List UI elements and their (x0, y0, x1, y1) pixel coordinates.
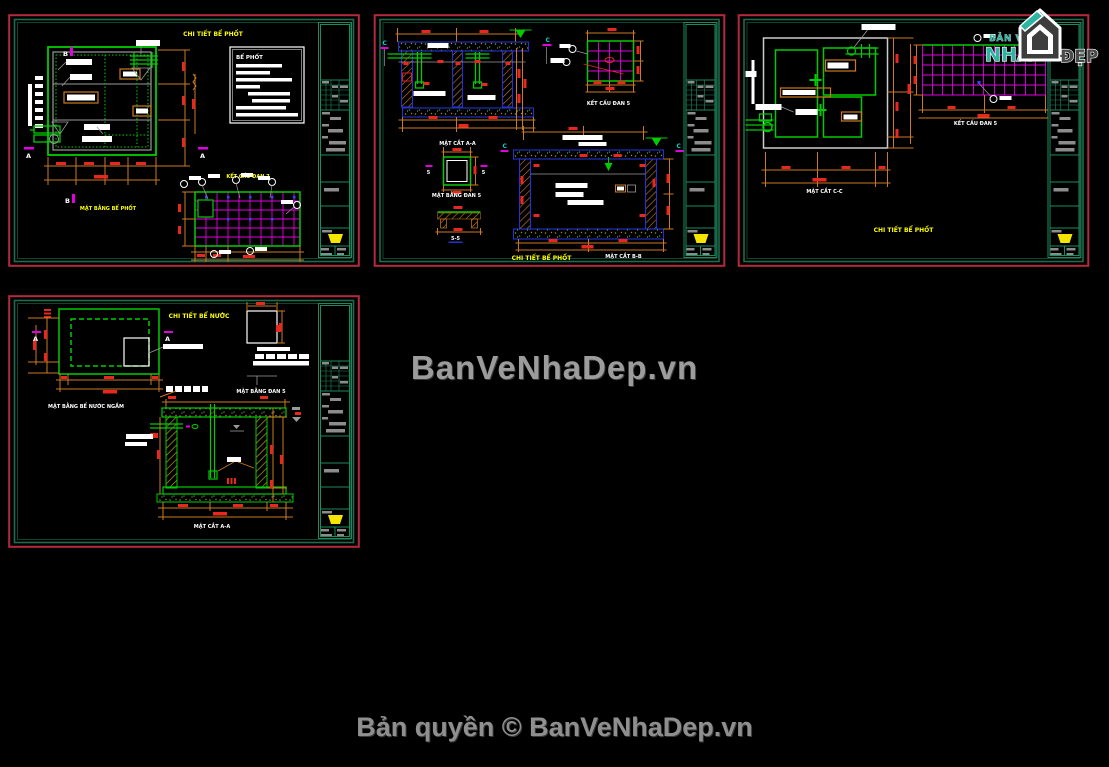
marker-b-top: B (63, 50, 68, 58)
title-block (319, 23, 352, 258)
plan-view: MẶT CẮT C-C (746, 24, 914, 195)
section-a-a: MẶT CẮT A-A (125, 396, 301, 530)
plan-dan-detail: 5 5 MẶT BẰNG ĐAN 5 (426, 147, 488, 199)
cad-preview-page: CHI TIẾT BỂ PHỐT (0, 0, 1109, 767)
sheet-2-septic-tank-sections: MẶT CẮT A-A C C (373, 14, 726, 267)
plan-dan-label: MẶT BẰNG ĐAN 5 (432, 191, 482, 199)
sheet-borders (9, 296, 359, 547)
marker-a-right: A (165, 335, 170, 343)
rebar-slab-detail: KẾT CẤU ĐAN 5 (551, 28, 644, 107)
watermark-text: BanVeNhaDep.vn (0, 349, 1109, 387)
copyright-text: Bản quyền © BanVeNhaDep.vn (0, 712, 1109, 743)
plan-view: B B A A MẶT BẰNG BỂ P (24, 40, 208, 212)
site-logo: BẢN VẼ NHÀ ĐẸP (972, 6, 1108, 73)
rebar-slab-detail: KẾT CẤU ĐAN 7 (178, 172, 304, 262)
note-box: BỂ PHỐT (230, 47, 304, 123)
marker-c-3: C (503, 143, 508, 150)
marker-c-1: C (383, 40, 388, 47)
outlet-pipe-fitting (746, 114, 774, 132)
marker-c-4: C (677, 143, 682, 150)
marker-a-right: A (200, 152, 205, 160)
section-b-label: MẶT CẮT B-B (605, 252, 642, 260)
title-block (319, 304, 352, 539)
marker-5-left: 5 (427, 170, 431, 176)
left-label-bar (28, 84, 32, 126)
dimension-lines-bottom (44, 157, 160, 185)
marker-a-left: A (33, 335, 38, 343)
inlet-pipe-fitting (846, 44, 879, 58)
plan-dan-label: MẶT BẰNG ĐAN 5 (236, 387, 286, 395)
logo-right-text: ĐẸP (1060, 47, 1098, 67)
title-block (684, 23, 717, 258)
sheet-title: CHI TIẾT BỂ PHỐT (512, 254, 573, 262)
section-b-b: C C MẶT CẮT B-B (501, 126, 684, 260)
sheet-borders (375, 15, 725, 266)
marker-b-bottom: B (65, 197, 70, 205)
section-a-label: MẶT CẮT A-A (194, 522, 231, 530)
sheet-title: CHI TIẾT BỂ PHỐT (183, 30, 244, 38)
sheet-1-septic-tank-detail: CHI TIẾT BỂ PHỐT (8, 14, 360, 267)
sheet-title: CHI TIẾT BỂ NƯỚC (169, 312, 230, 320)
level-symbols (292, 407, 301, 422)
house-icon (1020, 10, 1060, 60)
dimension-lines-right (158, 50, 196, 166)
slab-label: KẾT CẤU ĐAN 5 (954, 119, 998, 127)
section-c-label: MẶT CẮT C-C (806, 187, 843, 195)
sheet-title: CHI TIẾT BỂ PHỐT (874, 226, 935, 234)
dimension-lines-bottom (762, 152, 891, 187)
sheet-4-water-tank-detail: CHI TIẾT BỂ NƯỚC A A (8, 295, 360, 548)
detail-55-label: 5-5 (451, 236, 461, 242)
plan-label: MẶT BẰNG BỂ NƯỚC NGẦM (48, 401, 124, 410)
note-title: BỂ PHỐT (236, 53, 263, 61)
slab-label: KẾT CẤU ĐAN 5 (587, 99, 631, 107)
section-a-a: MẶT CẮT A-A C C (381, 28, 552, 147)
marker-c-2: C (546, 37, 551, 44)
plan-label: MẶT BẰNG BỂ PHỐT (80, 204, 137, 212)
section-a-label: MẶT CẮT A-A (439, 139, 476, 147)
note-text-lines (236, 64, 298, 117)
detail-5-5: 5-5 (436, 206, 483, 243)
marker-5-right: 5 (482, 170, 486, 176)
marker-a-left: A (26, 152, 31, 160)
